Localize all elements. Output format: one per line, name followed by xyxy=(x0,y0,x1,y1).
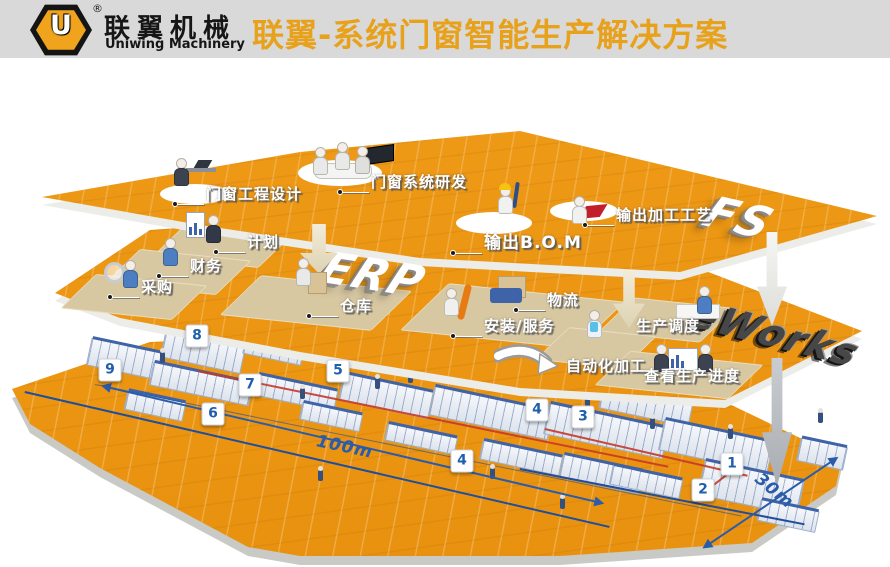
label-automated-processing: 自动化加工 xyxy=(566,355,646,376)
label-procurement: 采购 xyxy=(141,276,173,297)
label-window-system-rnd: 门窗系统研发 xyxy=(371,171,467,192)
plan-figure xyxy=(205,215,220,242)
service-figure xyxy=(443,288,458,315)
process-engineer-figure xyxy=(571,196,586,223)
floor-marker-4b: 4 xyxy=(451,450,474,473)
floor-marker-8: 8 xyxy=(186,325,209,348)
finance-figure xyxy=(162,238,177,265)
laptop-icon xyxy=(194,160,213,168)
robot-chest-light xyxy=(590,322,598,332)
meeting-figure xyxy=(312,147,327,174)
hardhat-icon xyxy=(499,183,511,190)
designer-figure xyxy=(173,158,188,185)
poster-title: 联翼-系统门窗智能生产解决方案 xyxy=(252,10,728,56)
label-view-production-progress: 查看生产进度 xyxy=(644,365,740,386)
uniwing-logo-icon: U xyxy=(30,3,92,57)
curved-arrow-icon xyxy=(494,344,560,382)
floor-marker-6: 6 xyxy=(202,403,225,426)
brand-name-en: Uniwing Machinery xyxy=(105,37,245,52)
worker-figure xyxy=(560,498,565,509)
forklift-icon xyxy=(490,288,522,303)
floor-marker-7: 7 xyxy=(239,374,262,397)
floor-marker-9: 9 xyxy=(99,359,122,382)
floor-marker-2: 2 xyxy=(692,479,715,502)
warehouse-figure xyxy=(295,258,310,285)
worker-figure xyxy=(650,418,655,429)
designer-desk xyxy=(186,168,216,172)
floor-marker-4a: 4 xyxy=(526,399,549,422)
logo-monogram: U xyxy=(30,10,92,41)
worker-figure xyxy=(375,378,380,389)
worker-figure xyxy=(318,470,323,481)
scheduler-figure xyxy=(696,286,711,313)
poster-scene: U ® 联翼机械 Uniwing Machinery 联翼-系统门窗智能生产解决… xyxy=(0,0,890,567)
worker-figure xyxy=(818,412,823,423)
label-window-engineering-design: 门窗工程设计 xyxy=(206,183,302,204)
label-logistics: 物流 xyxy=(547,289,579,310)
worker-figure xyxy=(300,388,305,399)
label-plan: 计划 xyxy=(247,231,279,252)
floor-marker-5: 5 xyxy=(327,360,350,383)
label-finance: 财务 xyxy=(190,255,222,276)
worker-figure xyxy=(728,428,733,439)
worker-figure xyxy=(160,352,165,363)
label-output-process: 输出加工工艺 xyxy=(616,204,712,225)
registered-trademark: ® xyxy=(92,2,103,15)
label-warehouse: 仓库 xyxy=(340,295,372,316)
floor-marker-1: 1 xyxy=(721,453,744,476)
bom-engineer-figure xyxy=(497,186,512,213)
procurement-figure xyxy=(122,260,137,287)
label-production-scheduling: 生产调度 xyxy=(636,315,700,336)
header-bar: U ® 联翼机械 Uniwing Machinery 联翼-系统门窗智能生产解决… xyxy=(0,0,890,58)
floor-marker-3: 3 xyxy=(572,406,595,429)
flipchart-icon xyxy=(186,212,205,238)
meeting-figure xyxy=(354,146,369,173)
label-install-service: 安装/服务 xyxy=(484,315,554,336)
meeting-figure xyxy=(334,142,349,169)
label-output-bom: 输出B.O.M xyxy=(484,228,582,253)
